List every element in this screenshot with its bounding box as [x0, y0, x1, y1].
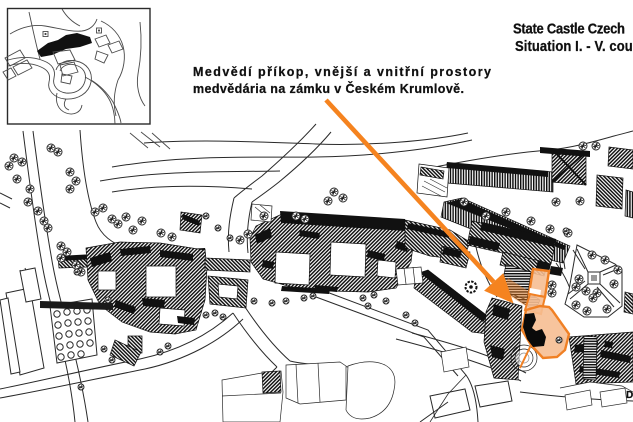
svg-text:D: D: [626, 390, 633, 401]
svg-text:medvědária na zámku v Českém K: medvědária na zámku v Českém Krumlově.: [193, 81, 464, 96]
svg-text:State Castle Czech: State Castle Czech: [513, 21, 625, 37]
svg-text:Situation I. - V. courtyard: Situation I. - V. courtyard: [515, 38, 633, 54]
